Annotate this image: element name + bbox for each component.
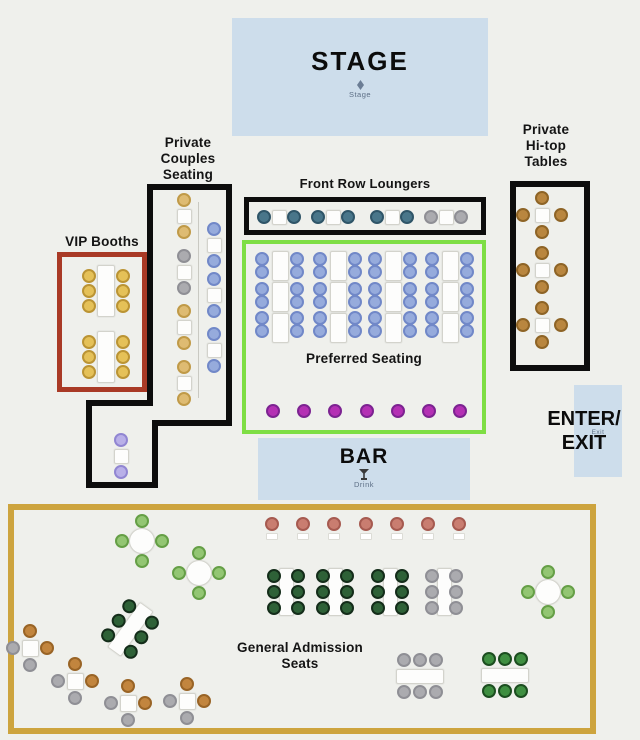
seat-mdgreen xyxy=(482,652,496,666)
round-table xyxy=(535,579,561,605)
seat-gray xyxy=(104,696,118,710)
seat-teal xyxy=(400,210,414,224)
seat-blue xyxy=(348,265,362,279)
lounger-table xyxy=(385,210,400,225)
seat-dkgreen xyxy=(340,585,354,599)
seat-salmon xyxy=(296,517,310,531)
seat-blue xyxy=(207,222,221,236)
seat-brown xyxy=(554,208,568,222)
seat-label-chip xyxy=(297,533,309,540)
seat-salmon xyxy=(421,517,435,531)
seat-mdgreen xyxy=(482,684,496,698)
banquet-table xyxy=(481,668,529,683)
seat-gray xyxy=(413,685,427,699)
seat-brown xyxy=(554,318,568,332)
seat-gold xyxy=(116,284,130,298)
seat-tan xyxy=(177,336,191,350)
seat-dkgreen xyxy=(291,585,305,599)
seat-gold xyxy=(82,269,96,283)
seat-ltgreen xyxy=(135,514,149,528)
seat-blue xyxy=(425,252,439,266)
seat-magenta xyxy=(453,404,467,418)
seat-brown xyxy=(535,280,549,294)
seat-blue xyxy=(255,265,269,279)
seat-blue xyxy=(255,311,269,325)
seat-blue xyxy=(425,324,439,338)
preferred-table xyxy=(330,251,347,281)
hitop-table xyxy=(535,208,550,223)
round-table xyxy=(129,528,155,554)
seat-mdgreen xyxy=(514,652,528,666)
seat-dkgreen xyxy=(267,601,281,615)
seat-orange xyxy=(23,624,37,638)
seat-brown xyxy=(516,208,530,222)
seat-blue xyxy=(290,311,304,325)
seat-gray xyxy=(425,585,439,599)
seat-brown xyxy=(516,263,530,277)
seat-dkgreen xyxy=(371,569,385,583)
seat-gold xyxy=(116,365,130,379)
seat-dkgreen xyxy=(316,601,330,615)
couple-table xyxy=(177,376,192,391)
seat-ltgreen xyxy=(192,586,206,600)
seat-brown xyxy=(535,191,549,205)
seat-ltgreen xyxy=(172,566,186,580)
seat-blue xyxy=(290,252,304,266)
seat-gray xyxy=(163,694,177,708)
seat-gold xyxy=(82,350,96,364)
hitop-table xyxy=(535,263,550,278)
seat-gray xyxy=(51,674,65,688)
seat-ltgreen xyxy=(115,534,129,548)
seat-ltgreen xyxy=(192,546,206,560)
seat-gray xyxy=(429,653,443,667)
seat-magenta xyxy=(391,404,405,418)
couple-table xyxy=(177,209,192,224)
seat-gray xyxy=(449,585,463,599)
square-table xyxy=(22,640,39,657)
seat-blue xyxy=(425,311,439,325)
square-table xyxy=(67,673,84,690)
seat-blue xyxy=(313,252,327,266)
seat-blue xyxy=(313,265,327,279)
square-table xyxy=(179,693,196,710)
preferred-table xyxy=(442,313,459,343)
seat-blue xyxy=(207,254,221,268)
seat-label-chip xyxy=(360,533,372,540)
seat-magenta xyxy=(360,404,374,418)
seat-salmon xyxy=(265,517,279,531)
couple-table xyxy=(177,265,192,280)
couple-table xyxy=(114,449,129,464)
seat-dkgreen xyxy=(291,569,305,583)
seat-ltgreen xyxy=(155,534,169,548)
seat-gray xyxy=(121,713,135,727)
seat-blue xyxy=(255,295,269,309)
couple-table xyxy=(207,343,222,358)
seat-blue xyxy=(460,324,474,338)
seat-orange xyxy=(121,679,135,693)
seat-dkgreen xyxy=(340,601,354,615)
seat-blue xyxy=(348,252,362,266)
booth-table xyxy=(97,331,115,383)
seat-dkgreen xyxy=(340,569,354,583)
preferred-table xyxy=(272,282,289,312)
seat-label-chip xyxy=(453,533,465,540)
seat-label-chip xyxy=(391,533,403,540)
seat-gray xyxy=(68,691,82,705)
seat-mdgreen xyxy=(498,684,512,698)
seat-layer xyxy=(0,0,640,740)
seat-blue xyxy=(403,252,417,266)
seat-orange xyxy=(197,694,211,708)
seat-gray xyxy=(425,601,439,615)
seat-orange xyxy=(85,674,99,688)
couple-table xyxy=(177,320,192,335)
seat-lavender xyxy=(114,465,128,479)
seat-dkgreen xyxy=(395,569,409,583)
seat-blue xyxy=(368,265,382,279)
round-table xyxy=(186,560,212,586)
seat-blue xyxy=(425,282,439,296)
seat-magenta xyxy=(266,404,280,418)
seat-blue xyxy=(368,282,382,296)
seat-gray xyxy=(397,653,411,667)
seat-blue xyxy=(290,282,304,296)
seat-blue xyxy=(368,252,382,266)
seat-ltgreen xyxy=(541,605,555,619)
seat-brown xyxy=(535,246,549,260)
seat-ltgreen xyxy=(135,554,149,568)
seat-blue xyxy=(255,324,269,338)
seat-blue xyxy=(207,327,221,341)
booth-table xyxy=(97,265,115,317)
seat-orange xyxy=(180,677,194,691)
seat-ltgreen xyxy=(541,565,555,579)
seat-gray xyxy=(23,658,37,672)
seat-blue xyxy=(255,282,269,296)
seat-gold xyxy=(116,350,130,364)
seat-brown xyxy=(535,225,549,239)
preferred-table xyxy=(385,313,402,343)
seat-dkgreen xyxy=(371,585,385,599)
seat-salmon xyxy=(327,517,341,531)
seat-tan xyxy=(177,360,191,374)
seat-gray xyxy=(177,281,191,295)
seat-blue xyxy=(403,295,417,309)
seat-blue xyxy=(348,295,362,309)
seat-blue xyxy=(313,295,327,309)
seat-salmon xyxy=(452,517,466,531)
seat-gray xyxy=(449,601,463,615)
seat-blue xyxy=(368,295,382,309)
seat-orange xyxy=(138,696,152,710)
seat-dkgreen xyxy=(291,601,305,615)
hitop-table xyxy=(535,318,550,333)
seat-mdgreen xyxy=(498,652,512,666)
seat-blue xyxy=(290,295,304,309)
seat-teal xyxy=(341,210,355,224)
seat-blue xyxy=(207,272,221,286)
seat-blue xyxy=(403,282,417,296)
seat-tan xyxy=(177,225,191,239)
couple-table xyxy=(207,238,222,253)
seat-ltgreen xyxy=(521,585,535,599)
seat-blue xyxy=(460,252,474,266)
seat-teal xyxy=(311,210,325,224)
seat-blue xyxy=(348,282,362,296)
seat-teal xyxy=(287,210,301,224)
seat-gold xyxy=(116,335,130,349)
seat-tan xyxy=(177,193,191,207)
seat-brown xyxy=(535,335,549,349)
couple-table xyxy=(207,288,222,303)
seat-lavender xyxy=(114,433,128,447)
seat-gray xyxy=(429,685,443,699)
preferred-table xyxy=(385,282,402,312)
seat-blue xyxy=(425,295,439,309)
preferred-table xyxy=(442,282,459,312)
seat-dkgreen xyxy=(395,601,409,615)
seat-blue xyxy=(313,282,327,296)
seat-magenta xyxy=(422,404,436,418)
seat-gold xyxy=(82,299,96,313)
seat-magenta xyxy=(297,404,311,418)
seat-orange xyxy=(68,657,82,671)
seat-blue xyxy=(460,265,474,279)
seat-brown xyxy=(516,318,530,332)
seat-ltgreen xyxy=(212,566,226,580)
seat-blue xyxy=(403,311,417,325)
seat-blue xyxy=(403,324,417,338)
seat-gold xyxy=(82,284,96,298)
seat-label-chip xyxy=(328,533,340,540)
seat-blue xyxy=(207,304,221,318)
seat-gray xyxy=(425,569,439,583)
seat-gray xyxy=(6,641,20,655)
seat-tan xyxy=(177,304,191,318)
seat-magenta xyxy=(328,404,342,418)
lounger-table xyxy=(439,210,454,225)
lounger-table xyxy=(272,210,287,225)
seat-ltgreen xyxy=(561,585,575,599)
seat-blue xyxy=(313,324,327,338)
seat-teal xyxy=(370,210,384,224)
seat-blue xyxy=(368,311,382,325)
seat-blue xyxy=(368,324,382,338)
seat-gray xyxy=(424,210,438,224)
seat-gray xyxy=(180,711,194,725)
seat-blue xyxy=(425,265,439,279)
venue-seating-map: STAGE Stage Private Couples Seating VIP … xyxy=(0,0,640,740)
preferred-table xyxy=(330,313,347,343)
seat-brown xyxy=(554,263,568,277)
preferred-table xyxy=(272,313,289,343)
seat-dkgreen xyxy=(316,585,330,599)
preferred-table xyxy=(330,282,347,312)
seat-orange xyxy=(40,641,54,655)
seat-gold xyxy=(116,269,130,283)
preferred-table xyxy=(272,251,289,281)
seat-blue xyxy=(460,311,474,325)
seat-label-chip xyxy=(266,533,278,540)
seat-gray xyxy=(454,210,468,224)
seat-blue xyxy=(403,265,417,279)
seat-salmon xyxy=(359,517,373,531)
seat-blue xyxy=(207,359,221,373)
seat-dkgreen xyxy=(395,585,409,599)
seat-gold xyxy=(82,335,96,349)
seat-gray xyxy=(397,685,411,699)
seat-blue xyxy=(313,311,327,325)
seat-dkgreen xyxy=(316,569,330,583)
seat-blue xyxy=(460,295,474,309)
seat-salmon xyxy=(390,517,404,531)
rotated-banquet-table xyxy=(86,582,173,676)
seat-gray xyxy=(177,249,191,263)
seat-mdgreen xyxy=(514,684,528,698)
seat-blue xyxy=(290,324,304,338)
seat-gold xyxy=(116,299,130,313)
seat-blue xyxy=(348,311,362,325)
seat-gold xyxy=(82,365,96,379)
preferred-table xyxy=(385,251,402,281)
seat-tan xyxy=(177,392,191,406)
seat-brown xyxy=(535,301,549,315)
seat-label-chip xyxy=(422,533,434,540)
seat-teal xyxy=(257,210,271,224)
seat-blue xyxy=(255,252,269,266)
seat-gray xyxy=(413,653,427,667)
seat-dkgreen xyxy=(267,585,281,599)
seat-gray xyxy=(449,569,463,583)
banquet-table xyxy=(396,669,444,684)
seat-blue xyxy=(460,282,474,296)
seat-dkgreen xyxy=(267,569,281,583)
square-table xyxy=(120,695,137,712)
preferred-table xyxy=(442,251,459,281)
seat-blue xyxy=(290,265,304,279)
seat-blue xyxy=(348,324,362,338)
seat-dkgreen xyxy=(371,601,385,615)
lounger-table xyxy=(326,210,341,225)
